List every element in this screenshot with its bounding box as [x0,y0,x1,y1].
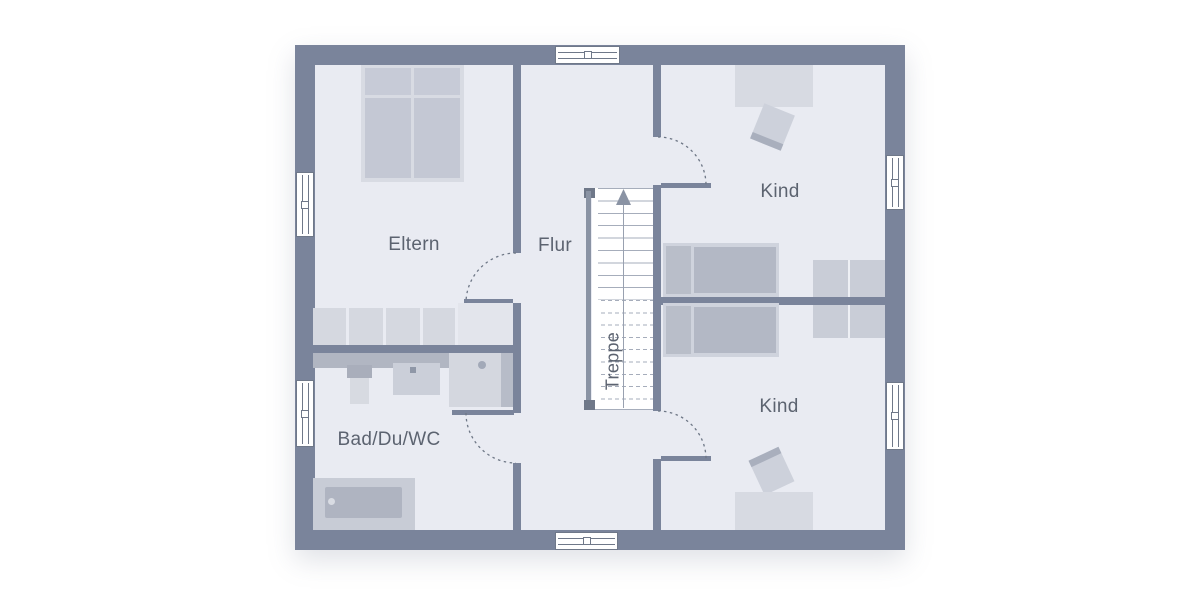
wardrobe-segment [423,308,455,345]
door-leaf-kind-bottom [661,456,711,461]
room-label-kind-bottom: Kind [759,396,798,418]
bed-pillow [666,306,691,354]
window-south-flur [555,532,618,550]
dresser-kind-bottom [813,305,885,338]
wall-kind-bottom-stub [653,459,661,530]
exterior-wall-west [295,45,315,550]
bed-mattress [694,247,776,293]
door-leaf-kind-top [661,183,711,188]
bed-kind-bottom [663,303,779,357]
window-west-bad [296,380,314,447]
stair-rail [586,191,591,403]
desk-kind-top [735,65,813,107]
bed-mattress [694,307,776,353]
parents-bed [361,65,464,182]
sink [393,363,440,395]
stair-label-treppe: Treppe [603,332,624,390]
window-east-kind-bottom [886,382,904,450]
wall-flur-kind-top [653,65,661,137]
shower-right-panel [501,353,513,407]
floorplan-canvas: Eltern Flur Kind Kind Bad/Du/WC Treppe [0,0,1200,600]
desk-kind-bottom [735,492,813,530]
exterior-wall-east [885,45,905,550]
room-label-flur: Flur [538,235,572,257]
stair-rail-cap-bottom [584,400,595,410]
room-label-eltern: Eltern [388,234,439,256]
window-east-kind-top [886,155,904,210]
bathtub-inner [325,487,402,518]
door-leaf-bad [452,410,514,415]
window-north-flur [555,46,620,64]
shower [449,353,513,407]
bathtub-drain-dot [328,498,335,505]
bed-pillow-left [365,68,411,95]
stair-treads-upper [598,188,653,300]
window-west-eltern [296,172,314,237]
bed-kind-top [663,243,779,297]
wall-bad-north [315,345,521,353]
bed-pillow [666,246,691,294]
toilet-bowl [350,378,369,404]
sink-faucet-dot [410,367,416,373]
bathtub [313,478,415,530]
room-label-kind-top: Kind [760,181,799,203]
wardrobe-segment [386,308,420,345]
bed-mattress-left [365,98,411,178]
bed-mattress-right [414,98,460,178]
wall-bad-flur-upper-stub [513,353,521,413]
wall-eltern-flur [513,65,521,253]
wall-bad-flur-lower-stub [513,463,521,530]
wardrobe-segment [313,308,346,345]
bed-pillow-right [414,68,460,95]
toilet-tank [347,365,372,378]
shower-head-dot [478,361,486,369]
room-label-bad: Bad/Du/WC [337,429,440,451]
wardrobe-light-segment [458,303,513,345]
wall-stairwell-east [653,185,661,411]
dresser-kind-top [813,260,885,297]
wardrobe-segment [349,308,383,345]
